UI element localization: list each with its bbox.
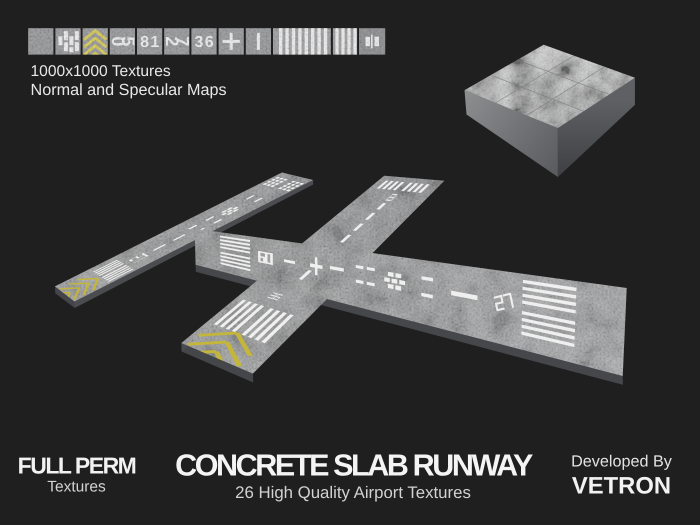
svg-text:VETRON: VETRON: [572, 473, 671, 500]
svg-text:Developed By: Developed By: [571, 453, 673, 471]
svg-text:Textures: Textures: [47, 479, 106, 496]
svg-text:Normal and Specular Maps: Normal and Specular Maps: [31, 81, 227, 99]
svg-text:CONCRETE SLAB RUNWAY: CONCRETE SLAB RUNWAY: [175, 449, 533, 483]
svg-text:1000x1000 Textures: 1000x1000 Textures: [31, 63, 171, 80]
svg-text:26 High Quality Airport Textur: 26 High Quality Airport Textures: [235, 483, 471, 502]
svg-text:FULL PERM: FULL PERM: [18, 453, 136, 479]
